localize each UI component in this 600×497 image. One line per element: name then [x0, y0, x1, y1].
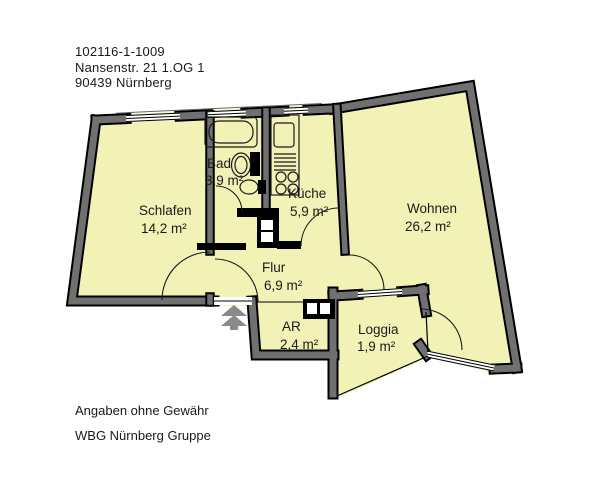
room-area-wohnen: 26,2 m² — [405, 219, 451, 234]
room-label-bad: Bad — [207, 156, 231, 171]
room-area-flur: 6,9 m² — [264, 278, 303, 293]
floorplan-svg: Schlafen 14,2 m² Bad 3,9 m² Küche 5,9 m²… — [0, 0, 600, 497]
room-label-ar: AR — [282, 319, 301, 334]
room-label-loggia: Loggia — [358, 322, 399, 337]
room-label-schlafen: Schlafen — [139, 203, 192, 218]
company-text: WBG Nürnberg Gruppe — [75, 428, 211, 443]
room-area-schlafen: 14,2 m² — [141, 221, 187, 236]
room-label-wohnen: Wohnen — [407, 201, 457, 216]
room-area-loggia: 1,9 m² — [357, 339, 396, 354]
room-area-kueche: 5,9 m² — [290, 204, 329, 219]
disclaimer-text: Angaben ohne Gewähr — [75, 403, 209, 418]
shaft-icon — [303, 299, 335, 319]
entrance-arrow-icon — [221, 305, 247, 330]
room-label-kueche: Küche — [288, 186, 326, 201]
room-area-bad: 3,9 m² — [205, 173, 244, 188]
room-area-ar: 2,4 m² — [280, 337, 319, 352]
room-label-flur: Flur — [262, 260, 286, 275]
